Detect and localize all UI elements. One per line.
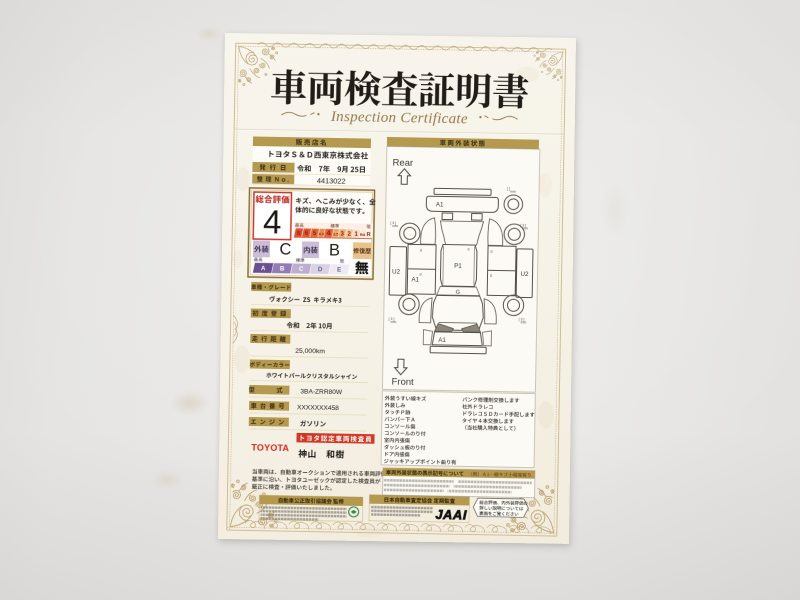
svg-text:R: R [367,232,371,238]
svg-text:A1: A1 [411,276,419,283]
svg-text:U2: U2 [392,269,401,276]
svg-text:Rear: Rear [392,158,413,169]
svg-text:Inspection Certificate: Inspection Certificate [330,109,468,128]
svg-text:C: C [299,267,304,273]
svg-text:mm: mm [521,321,527,325]
svg-text:U2: U2 [520,271,529,278]
svg-text:S: S [297,231,301,237]
svg-text:25,000km: 25,000km [295,348,325,356]
svg-text:4413022: 4413022 [317,176,346,186]
svg-text:B: B [280,266,285,272]
svg-text:A: A [261,266,266,272]
svg-text:D: D [318,267,323,273]
svg-text:P1: P1 [454,263,462,270]
svg-text:mm: mm [522,227,528,231]
svg-text:mm: mm [391,320,397,324]
svg-text:A1: A1 [438,337,446,344]
svg-text:Front: Front [391,377,414,388]
svg-text:G: G [456,290,460,296]
svg-text:3BA-ZRR80W: 3BA-ZRR80W [300,388,343,396]
svg-text:3.5: 3.5 [333,233,338,237]
svg-text:C: C [279,240,291,258]
svg-text:4: 4 [263,203,282,240]
svg-text:TOYOTA: TOYOTA [251,442,289,453]
svg-text:B: B [329,241,340,259]
svg-text:4.5: 4.5 [319,232,324,236]
svg-text:mm: mm [392,224,398,228]
svg-text:A1: A1 [436,201,444,208]
svg-text:XXXXXXX458: XXXXXXX458 [297,405,339,413]
svg-text:JAAI: JAAI [435,507,467,523]
svg-text:mm: mm [510,190,516,194]
svg-text:RA: RA [360,233,366,237]
svg-text:E: E [337,268,341,274]
